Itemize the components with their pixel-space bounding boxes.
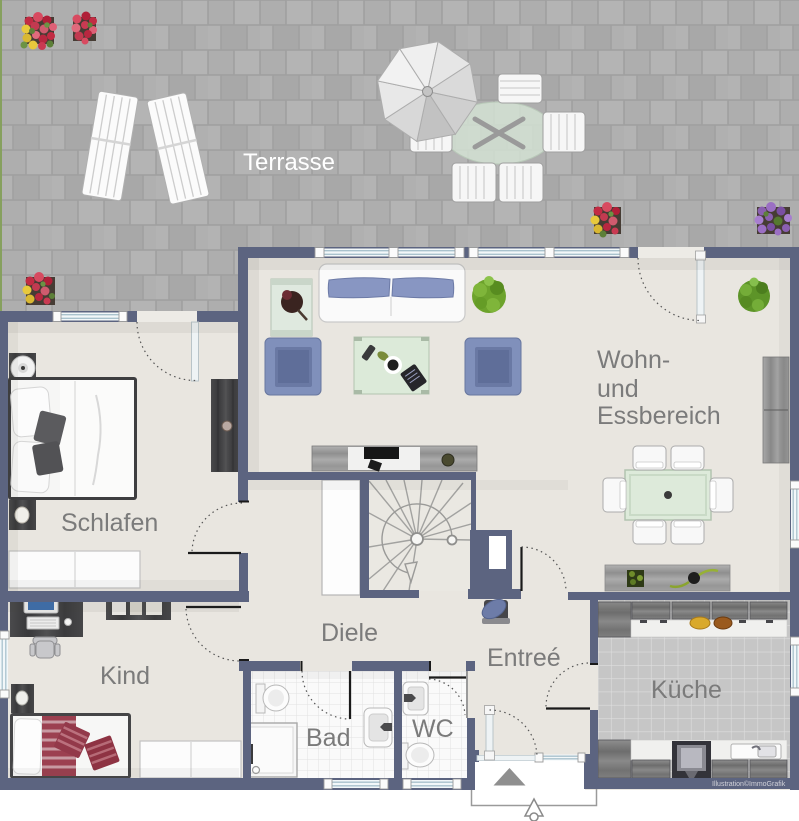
svg-text:Essbereich: Essbereich — [597, 402, 721, 430]
svg-text:Schlafen: Schlafen — [61, 509, 158, 537]
svg-text:WC: WC — [412, 715, 454, 743]
svg-text:Terrasse: Terrasse — [243, 149, 335, 176]
svg-text:Wohn-: Wohn- — [597, 346, 670, 374]
svg-text:Küche: Küche — [651, 676, 722, 704]
svg-text:Diele: Diele — [321, 619, 378, 647]
svg-text:Illustration©ImmoGrafik: Illustration©ImmoGrafik — [712, 780, 786, 788]
svg-text:Bad: Bad — [306, 724, 350, 752]
svg-text:Kind: Kind — [100, 662, 150, 690]
svg-text:und: und — [597, 375, 639, 403]
svg-text:Entreé: Entreé — [487, 644, 561, 672]
